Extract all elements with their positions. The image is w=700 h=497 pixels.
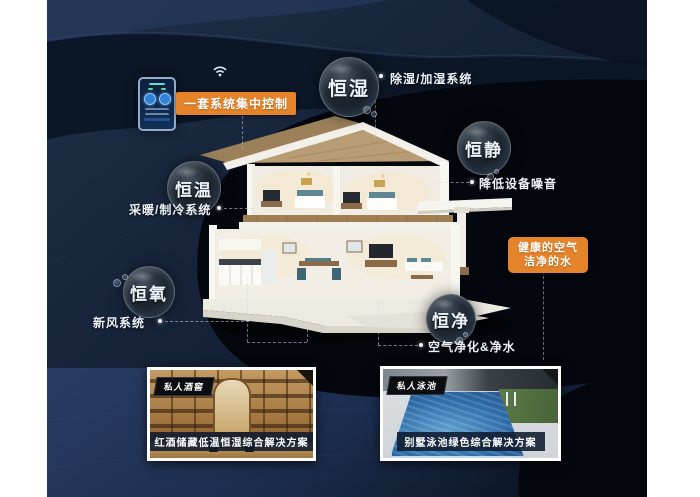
decor-bubble <box>363 106 371 114</box>
bubble-constant-temperature-label: 恒温 <box>175 176 213 201</box>
bubble-constant-quiet: 恒静 <box>457 121 511 175</box>
wine-cellar-arch <box>213 378 251 434</box>
wifi-icon <box>212 64 228 77</box>
decor-bubble <box>463 332 468 337</box>
control-panel-dials <box>142 93 172 105</box>
label-noise-reduction: 降低设备噪音 <box>479 175 557 192</box>
bubble-constant-humidity-label: 恒湿 <box>328 74 370 101</box>
pool-ladder <box>506 392 516 406</box>
badge-central-control-label: 一套系统集中控制 <box>184 97 288 111</box>
photo-pool-image: 私人泳池 别墅泳池绿色综合解决方案 <box>383 369 558 458</box>
bubble-constant-purity: 恒净 <box>426 294 476 344</box>
control-panel-footer <box>144 118 170 121</box>
bubble-constant-oxygen-label: 恒氧 <box>130 280 168 305</box>
pool-tag-label: 私人泳池 <box>396 381 438 391</box>
connector-purity <box>378 345 418 346</box>
wine-cellar-caption: 红酒储藏低温恒湿综合解决方案 <box>150 432 313 451</box>
badge-healthy-line1: 健康的空气 <box>514 241 582 255</box>
photo-pool: 私人泳池 别墅泳池绿色综合解决方案 <box>380 366 561 461</box>
decor-bubble <box>122 274 128 280</box>
wine-cellar-tag: 私人酒窖 <box>153 377 214 396</box>
bubble-constant-quiet-label: 恒静 <box>465 136 503 161</box>
control-panel-row <box>145 113 169 115</box>
connector-temperature <box>224 208 253 209</box>
infographic-canvas: 一套系统集中控制 恒湿 恒静 恒温 恒氧 恒净 除湿/加湿系统 <box>0 0 700 497</box>
bubble-constant-purity-label: 恒净 <box>432 307 470 332</box>
connector-healthy-down <box>543 266 544 360</box>
artwork-area: 一套系统集中控制 恒湿 恒静 恒温 恒氧 恒净 除湿/加湿系统 <box>47 0 647 497</box>
control-panel-icon <box>138 77 176 131</box>
badge-central-control: 一套系统集中控制 <box>176 92 296 115</box>
label-fresh-air-system: 新风系统 <box>93 314 145 331</box>
connector-wine-bottom <box>247 342 307 343</box>
connector-dot <box>470 180 474 184</box>
connector-dot <box>419 343 423 347</box>
label-heating-cooling-system: 采暖/制冷系统 <box>129 201 211 218</box>
control-panel-titlebar <box>149 83 165 85</box>
decor-bubble <box>371 111 377 117</box>
connector-central-down <box>242 111 243 149</box>
connector-dot <box>217 206 221 210</box>
label-air-water-purification: 空气净化&净水 <box>428 338 516 355</box>
connector-purity-up <box>378 300 379 345</box>
connector-quiet <box>430 182 469 183</box>
photo-corner-fold <box>297 370 313 386</box>
connector-oxygen <box>165 321 249 322</box>
photo-corner-fold <box>542 369 558 385</box>
badge-healthy-air-water: 健康的空气 洁净的水 <box>508 237 588 273</box>
connector-dot <box>158 319 162 323</box>
badge-healthy-line2: 洁净的水 <box>514 255 582 269</box>
control-panel-row <box>145 108 169 110</box>
label-humidity-system: 除湿/加湿系统 <box>390 70 472 87</box>
connector-wine-right <box>307 324 308 342</box>
decor-bubble <box>113 279 121 287</box>
wine-cellar-tag-label: 私人酒窖 <box>163 382 205 392</box>
decor-bubble <box>494 169 499 174</box>
connector-wine-left <box>247 278 248 342</box>
pool-tag: 私人泳池 <box>386 376 447 395</box>
photo-wine-cellar-image: 私人酒窖 红酒储藏低温恒湿综合解决方案 <box>150 370 313 458</box>
pool-caption: 别墅泳池绿色综合解决方案 <box>397 432 545 451</box>
photo-wine-cellar: 私人酒窖 红酒储藏低温恒湿综合解决方案 <box>147 367 316 461</box>
connector-dot <box>379 74 383 78</box>
control-panel-status-lights <box>144 88 170 90</box>
bubble-constant-oxygen: 恒氧 <box>123 266 175 318</box>
